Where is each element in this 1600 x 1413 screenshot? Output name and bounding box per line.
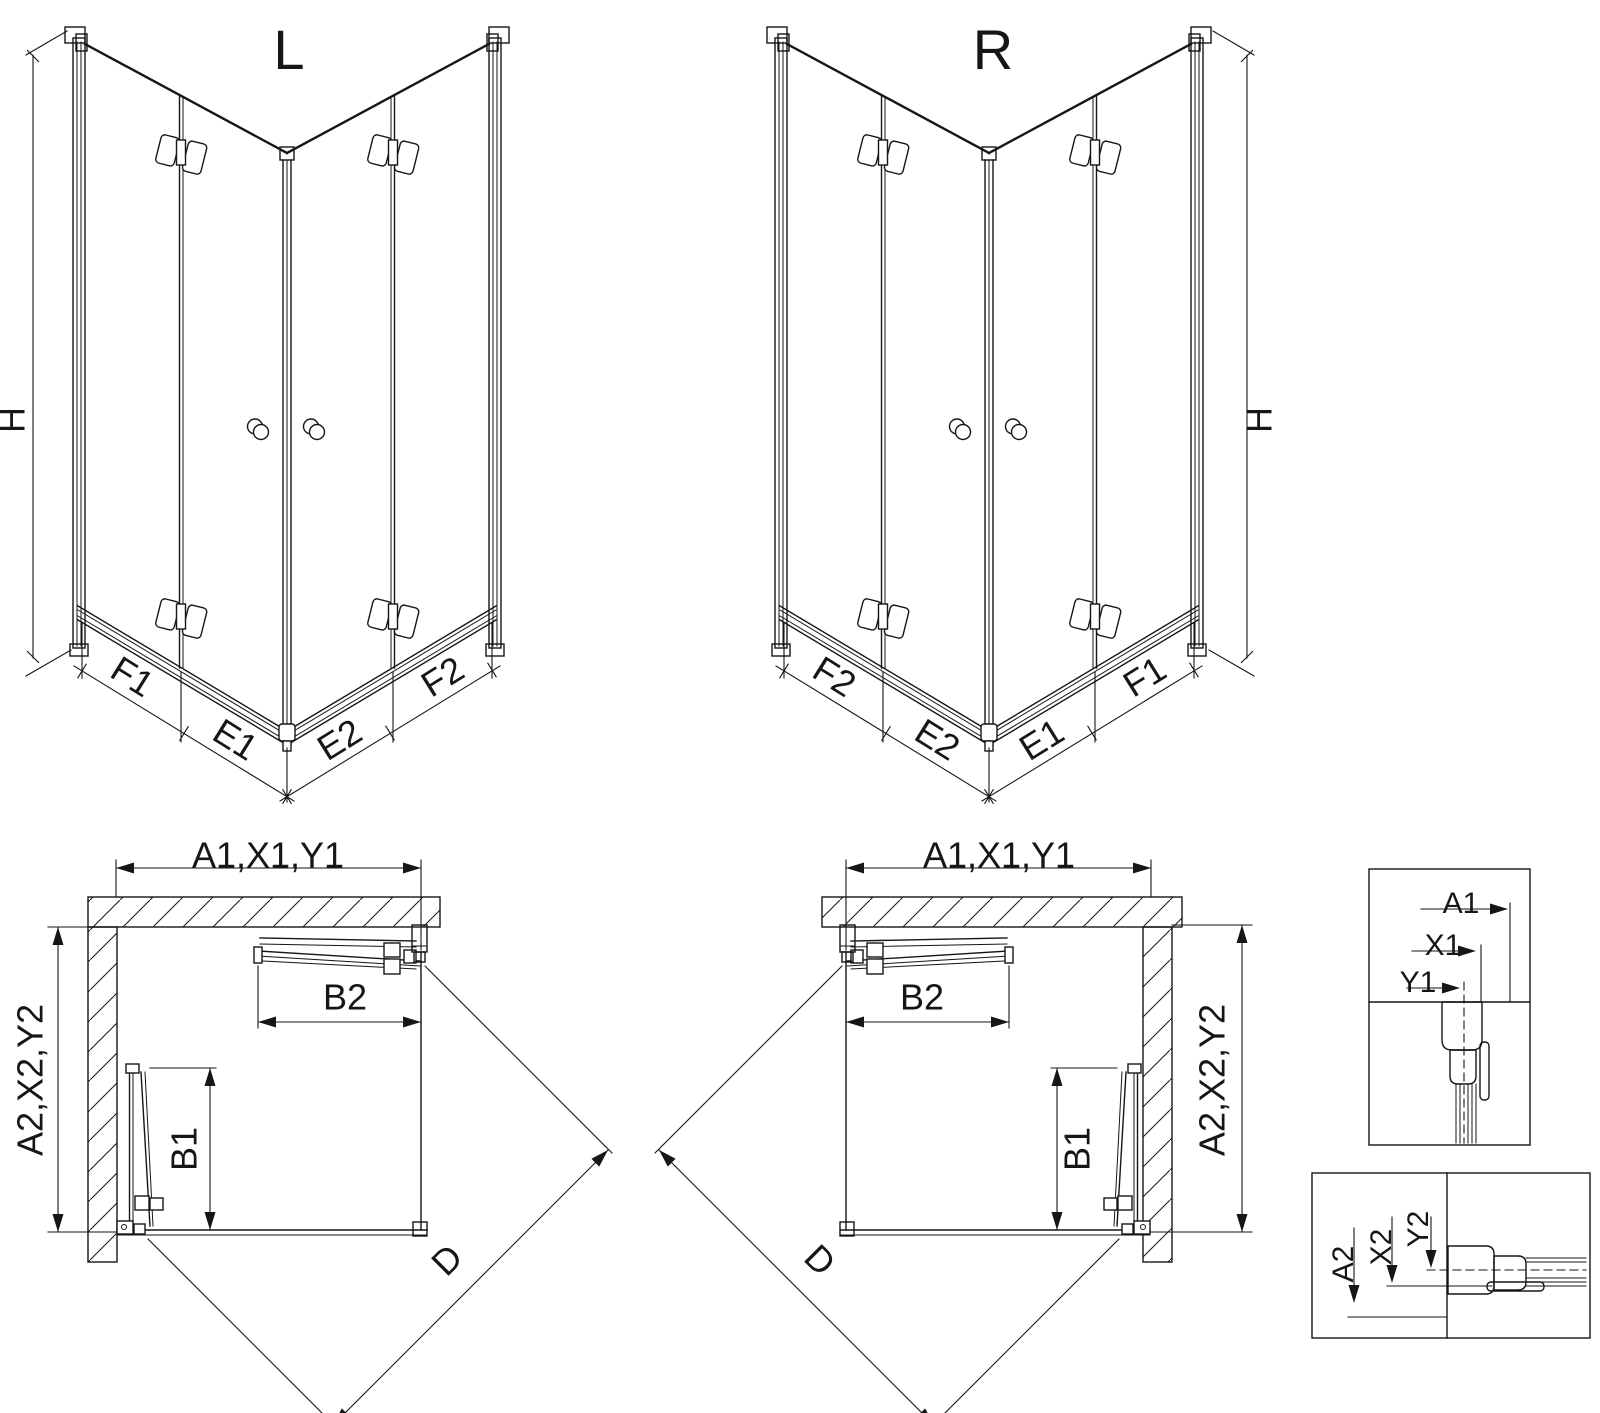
segment-label-e1: E1 — [206, 710, 265, 768]
door-side-label: B1 — [164, 1127, 205, 1171]
door-side-label: B1 — [1057, 1127, 1098, 1171]
detail-wall-profile-top: A1 X1 Y1 — [1369, 869, 1530, 1145]
segment-label-e2: E2 — [908, 710, 967, 768]
diagonal-label: D — [423, 1236, 470, 1283]
wall-side — [88, 927, 117, 1262]
width-label: A1,X1,Y1 — [192, 835, 344, 876]
wall-top — [88, 897, 440, 927]
diagonal-label: D — [796, 1236, 843, 1283]
detail-wall-profile-bottom: A2 X2 Y2 — [1312, 1173, 1590, 1338]
door-top-label: B2 — [900, 977, 944, 1018]
segment-label-f2: F2 — [414, 648, 471, 705]
detail-label-y1: Y1 — [1400, 966, 1437, 999]
segment-label-f2: F2 — [806, 648, 863, 705]
segment-label-e2: E2 — [310, 710, 369, 768]
segment-label-f1: F1 — [1116, 648, 1173, 705]
shower-enclosure-diagram: L H F1 E1 E2 F2 R H F2 E2 E1 F1 A1,X1,Y1… — [0, 0, 1600, 1413]
width-label: A1,X1,Y1 — [923, 835, 1075, 876]
technical-drawing-page: L H F1 E1 E2 F2 R H F2 E2 E1 F1 A1,X1,Y1… — [0, 0, 1600, 1413]
detail-label-x2: X2 — [1365, 1229, 1398, 1266]
height-label: H — [0, 407, 33, 433]
detail-label-y2: Y2 — [1402, 1211, 1435, 1248]
iso-left-view: L H F1 E1 E2 F2 — [0, 18, 509, 804]
wall-top — [822, 897, 1182, 927]
variant-label-left: L — [273, 18, 304, 81]
detail-label-a2: A2 — [1327, 1246, 1360, 1283]
variant-label-right: R — [973, 18, 1013, 81]
height-dimension — [1209, 31, 1254, 676]
wall-side — [1143, 927, 1172, 1262]
detail-label-x1: X1 — [1425, 929, 1462, 962]
depth-label: A2,X2,Y2 — [1192, 1004, 1233, 1156]
segment-label-f1: F1 — [104, 648, 161, 705]
detail-label-a1: A1 — [1443, 887, 1480, 920]
height-label: H — [1239, 407, 1280, 433]
height-dimension — [26, 31, 71, 676]
segment-label-e1: E1 — [1012, 710, 1071, 768]
iso-right-view: R H F2 E2 E1 F1 — [767, 18, 1280, 804]
plan-left-view: A1,X1,Y1 A2,X2,Y2 B2 B1 D — [10, 835, 612, 1413]
plan-right-view: A1,X1,Y1 A2,X2,Y2 B2 B1 D — [655, 835, 1252, 1413]
depth-label: A2,X2,Y2 — [10, 1004, 51, 1156]
profile-section — [1442, 1002, 1489, 1143]
door-top-label: B2 — [323, 977, 367, 1018]
